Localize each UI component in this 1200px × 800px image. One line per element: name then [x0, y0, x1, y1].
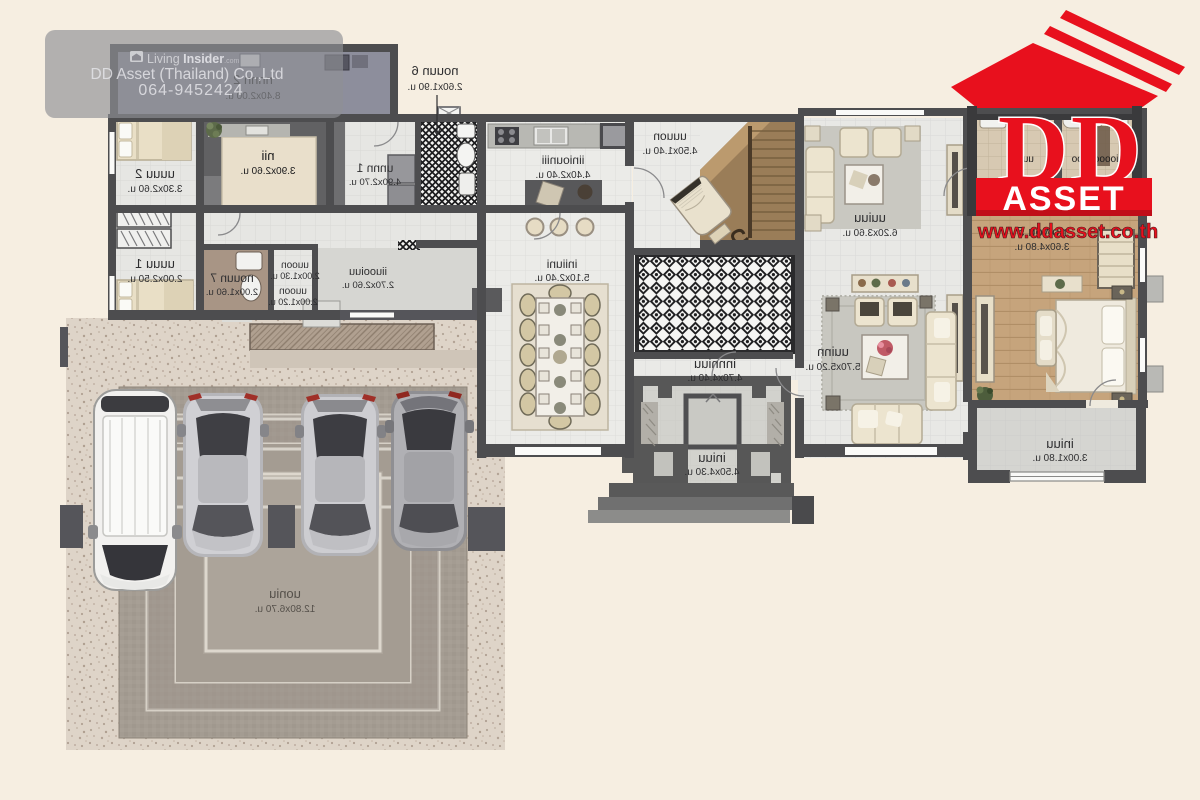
svg-text:iniiuni: iniiuni	[547, 257, 578, 271]
svg-text:DD Asset (Thailand) Co.,Ltd: DD Asset (Thailand) Co.,Ltd	[91, 66, 284, 83]
svg-text:iiuooiuu: iiuooiuu	[349, 266, 387, 278]
svg-text:2.00x1.60 u.: 2.00x1.60 u.	[206, 287, 258, 298]
svg-text:3.90x2.60 u.: 3.90x2.60 u.	[240, 166, 295, 177]
svg-text:3.30x2.60 u.: 3.30x2.60 u.	[127, 184, 182, 195]
svg-text:4.70x4.40 u.: 4.70x4.40 u.	[687, 373, 742, 384]
svg-text:2.60x1.90 u.: 2.60x1.90 u.	[407, 82, 462, 93]
svg-text:5.70x5.20 u.: 5.70x5.20 u.	[805, 362, 860, 373]
svg-text:3.60x4.80 u.: 3.60x4.80 u.	[1014, 242, 1069, 253]
svg-text:uuinn: uuinn	[817, 344, 849, 359]
svg-text:6.20x3.60 u.: 6.20x3.60 u.	[842, 228, 897, 239]
svg-text:nouun 7: nouun 7	[210, 271, 254, 285]
svg-text:iniuu: iniuu	[1046, 436, 1073, 451]
svg-text:2.00x1.20 u.: 2.00x1.20 u.	[268, 297, 318, 307]
svg-text:uuoon: uuoon	[279, 286, 307, 297]
svg-text:5.10x2.40 u.: 5.10x2.40 u.	[534, 273, 589, 284]
svg-text:uuuon: uuuon	[653, 129, 686, 143]
svg-text:12.80x6.70 u.: 12.80x6.70 u.	[255, 604, 316, 615]
svg-text:iniuu: iniuu	[698, 450, 725, 465]
svg-text:064-9452424: 064-9452424	[138, 82, 243, 99]
svg-text:unnn 1: unnn 1	[356, 161, 393, 175]
svg-text:iiniouniii: iiniouniii	[542, 153, 585, 167]
svg-text:2.00x1.30 u.: 2.00x1.30 u.	[270, 271, 320, 281]
svg-text:uuoon: uuoon	[281, 260, 309, 271]
svg-text:innniuu: innniuu	[694, 356, 736, 371]
svg-text:www.ddasset.co.th: www.ddasset.co.th	[977, 221, 1158, 243]
svg-text:4.40x2.40 u.: 4.40x2.40 u.	[535, 170, 590, 181]
svg-text:uoniu: uoniu	[269, 586, 301, 601]
svg-text:4.90x2.70 u.: 4.90x2.70 u.	[349, 177, 401, 188]
svg-text:4.50x1.40 u.: 4.50x1.40 u.	[642, 146, 697, 157]
svg-text:4.50x4.30 u.: 4.50x4.30 u.	[684, 467, 739, 478]
svg-text:uuuu 1: uuuu 1	[135, 256, 175, 271]
svg-text:uuiuu: uuiuu	[854, 210, 886, 225]
svg-text:2.70x2.60 u.: 2.70x2.60 u.	[342, 280, 394, 291]
svg-text:nouun 6: nouun 6	[412, 63, 459, 78]
svg-text:nii: nii	[261, 148, 274, 163]
svg-text:uuuu 2: uuuu 2	[135, 166, 175, 181]
svg-text:3.00x1.80 u.: 3.00x1.80 u.	[1032, 453, 1087, 464]
svg-text:ASSET: ASSET	[1002, 180, 1125, 218]
svg-text:2.00x2.50 u.: 2.00x2.50 u.	[127, 274, 182, 285]
